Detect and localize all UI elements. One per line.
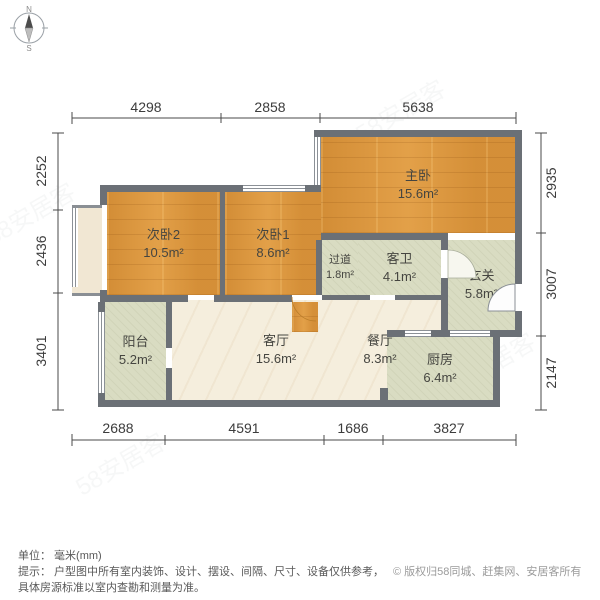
compass-south-label: S [26,44,31,53]
dim-right-1: 2935 [543,167,559,198]
dim-right-2: 3007 [543,268,559,299]
dim-left-2: 2436 [33,235,49,266]
compass-icon: N S [10,5,48,53]
tip-note-line2: 具体房源标准以室内查勘和测量为准。 [18,581,384,597]
plan-overlay: N S 4298 2858 5638 2688 4591 1686 3827 2… [0,0,600,600]
dim-top-2: 2858 [254,99,285,115]
dim-top-1: 4298 [130,99,161,115]
entrance-door-arc [488,284,515,311]
dim-bottom-2: 4591 [228,420,259,436]
dim-right-3: 2147 [543,357,559,388]
footer-notes: 单位： 毫米(mm) 提示： 户型图中所有室内装饰、设计、摆设、间隔、尺寸、设备… [18,549,384,597]
copyright-text: © 版权归58同城、赶集网、安居客所有 [393,563,581,579]
tip-note-line1: 提示： 户型图中所有室内装饰、设计、摆设、间隔、尺寸、设备仅供参考， [18,565,384,581]
unit-note: 单位： 毫米(mm) [18,549,384,565]
dim-left-3: 3401 [33,335,49,366]
dimension-lines [52,112,547,446]
dim-bottom-3: 1686 [337,420,368,436]
floor-plan: 58安居客 58安居客 58安居客 58安居客 客厅 15.6m² 厨房 6.4… [0,0,600,600]
bedroom-door-arc [292,297,316,321]
doors [292,250,515,321]
dimension-labels: 4298 2858 5638 2688 4591 1686 3827 2252 … [33,99,559,436]
dim-bottom-4: 3827 [433,420,464,436]
dim-top-3: 5638 [402,99,433,115]
compass-north-label: N [26,5,32,14]
dim-left-1: 2252 [33,155,49,186]
bathroom-door-arc [448,250,476,278]
dim-bottom-1: 2688 [102,420,133,436]
